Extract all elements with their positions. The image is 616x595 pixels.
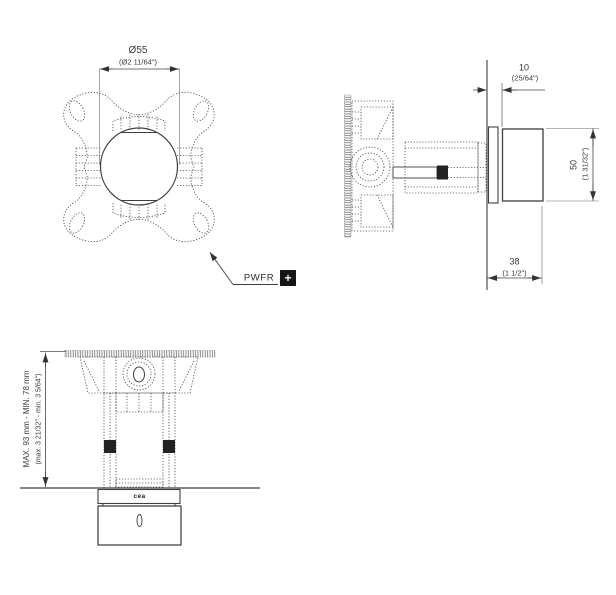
screw-slot-top-right: [190, 98, 212, 124]
serrated-strip-top: [65, 351, 215, 358]
inlet-circle-inner: [362, 159, 378, 175]
pwfr-plus-icon: +: [280, 270, 296, 286]
pwfr-callout-label: PWFR: [244, 273, 274, 283]
dimension-depth-range: [40, 352, 66, 488]
dim-label-height-inch: (1 31/32"): [581, 148, 589, 181]
drawing-linework: [0, 0, 616, 595]
trim-plate-side: [489, 127, 499, 203]
top-view-rough-valve: [65, 351, 215, 489]
inlet-circle-mid: [356, 153, 384, 181]
dim-label-diameter-mm: Ø55: [129, 46, 148, 56]
dim-label-diameter-inch: (Ø2 11/64"): [119, 58, 157, 66]
valve-opening-front: [101, 128, 178, 205]
dim-label-offset-mm: 10: [519, 64, 529, 73]
dim-label-depth-range-mm: MAX. 93 mm - MIN. 78 mm: [23, 371, 31, 468]
top-view-solid-parts: [104, 367, 175, 453]
trim-and-handle-side: [489, 127, 544, 203]
dimension-diameter: [100, 69, 180, 165]
dim-label-offset-inch: (25/64"): [512, 74, 538, 82]
dim-label-depth-mm: 38: [509, 258, 519, 267]
screw-slot-bottom-left: [66, 210, 88, 236]
front-view-bracket: [64, 92, 215, 241]
screw-slot-top-left: [66, 98, 88, 124]
valve-stem-side: [393, 166, 448, 180]
handle-knob-side: [503, 129, 544, 201]
handle-slot: [137, 515, 142, 527]
dim-label-depth-inch: (1 1/2"): [502, 269, 526, 277]
brand-logo: cea: [133, 493, 145, 500]
technical-drawing-sheet: Ø55 (Ø2 11/64") 10 (25/64") 50 (1 31/32"…: [0, 0, 616, 595]
handle-knob-top: [98, 506, 181, 545]
serrated-strip-side: [345, 95, 352, 237]
dim-label-depth-range-inch: (max. 3 21/32" - min. 3 5/64"): [36, 374, 43, 465]
leg-depth-band-left: [104, 440, 116, 453]
dim-label-height-mm: 50: [570, 160, 579, 170]
leg-depth-band-right: [163, 440, 175, 453]
side-view-rough-valve: [345, 95, 487, 237]
screw-slot-bottom-right: [190, 210, 212, 236]
stem-black-tip: [437, 166, 448, 180]
dimension-offset-10: [473, 83, 545, 127]
